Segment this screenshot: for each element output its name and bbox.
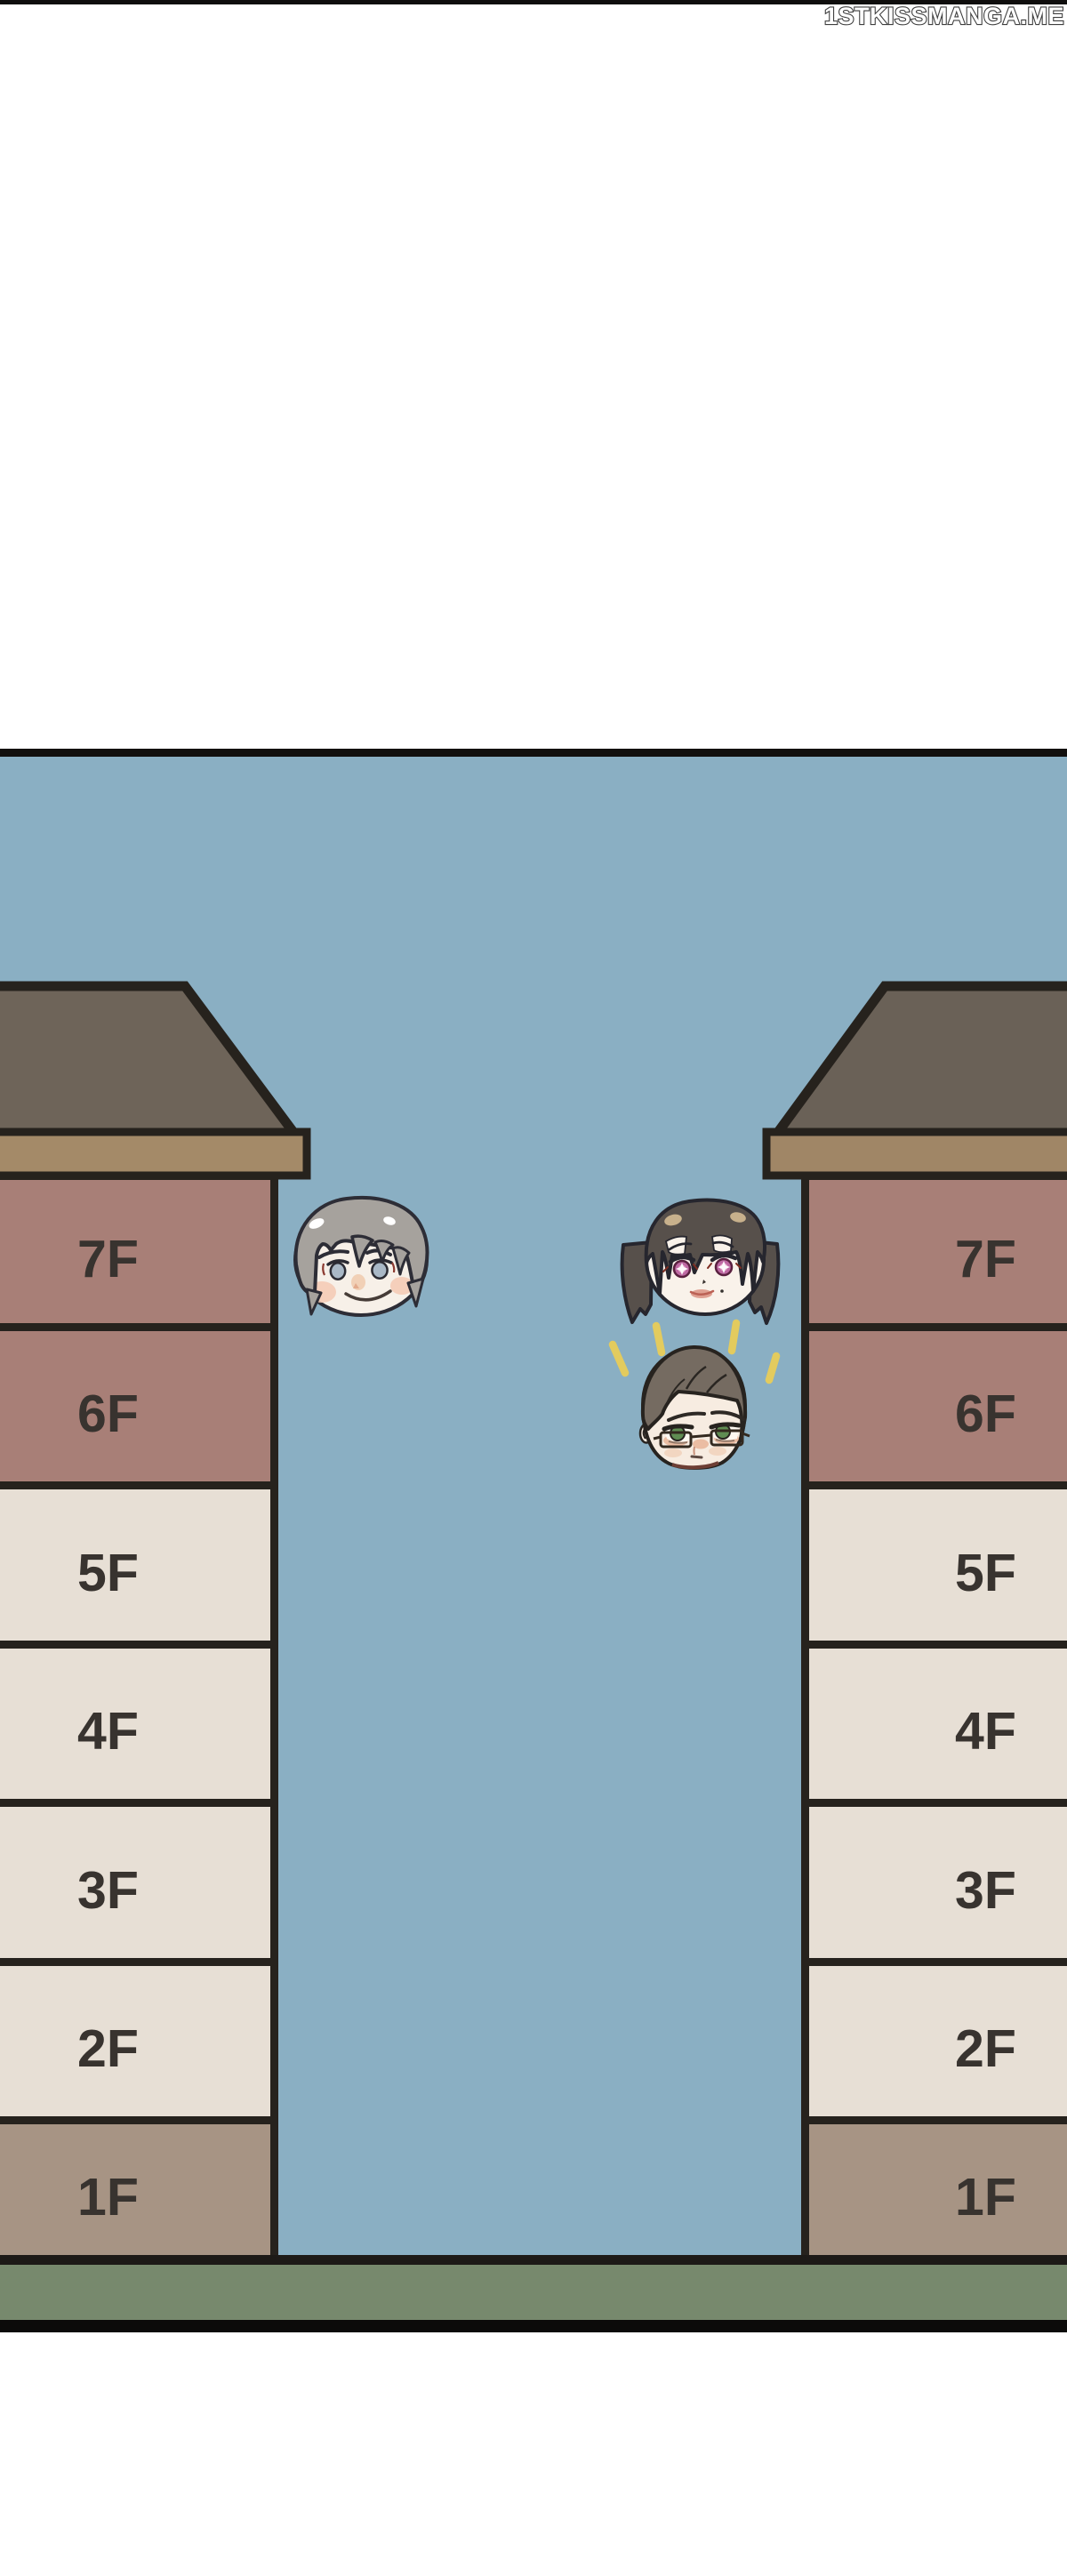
svg-text:1F: 1F (955, 2168, 1016, 2227)
svg-text:4F: 4F (77, 1702, 139, 1761)
svg-text:2F: 2F (77, 2019, 139, 2078)
svg-text:5F: 5F (77, 1544, 139, 1602)
svg-text:3F: 3F (955, 1861, 1016, 1920)
svg-text:1F: 1F (77, 2168, 139, 2227)
svg-text:4F: 4F (955, 1702, 1016, 1761)
svg-text:3F: 3F (77, 1861, 139, 1920)
svg-text:2F: 2F (955, 2019, 1016, 2078)
svg-text:1STKISSMANGA.ME: 1STKISSMANGA.ME (824, 3, 1064, 29)
svg-text:7F: 7F (77, 1230, 139, 1288)
svg-text:7F: 7F (955, 1230, 1016, 1288)
svg-text:6F: 6F (77, 1384, 139, 1443)
svg-text:6F: 6F (955, 1384, 1016, 1443)
svg-text:5F: 5F (955, 1544, 1016, 1602)
